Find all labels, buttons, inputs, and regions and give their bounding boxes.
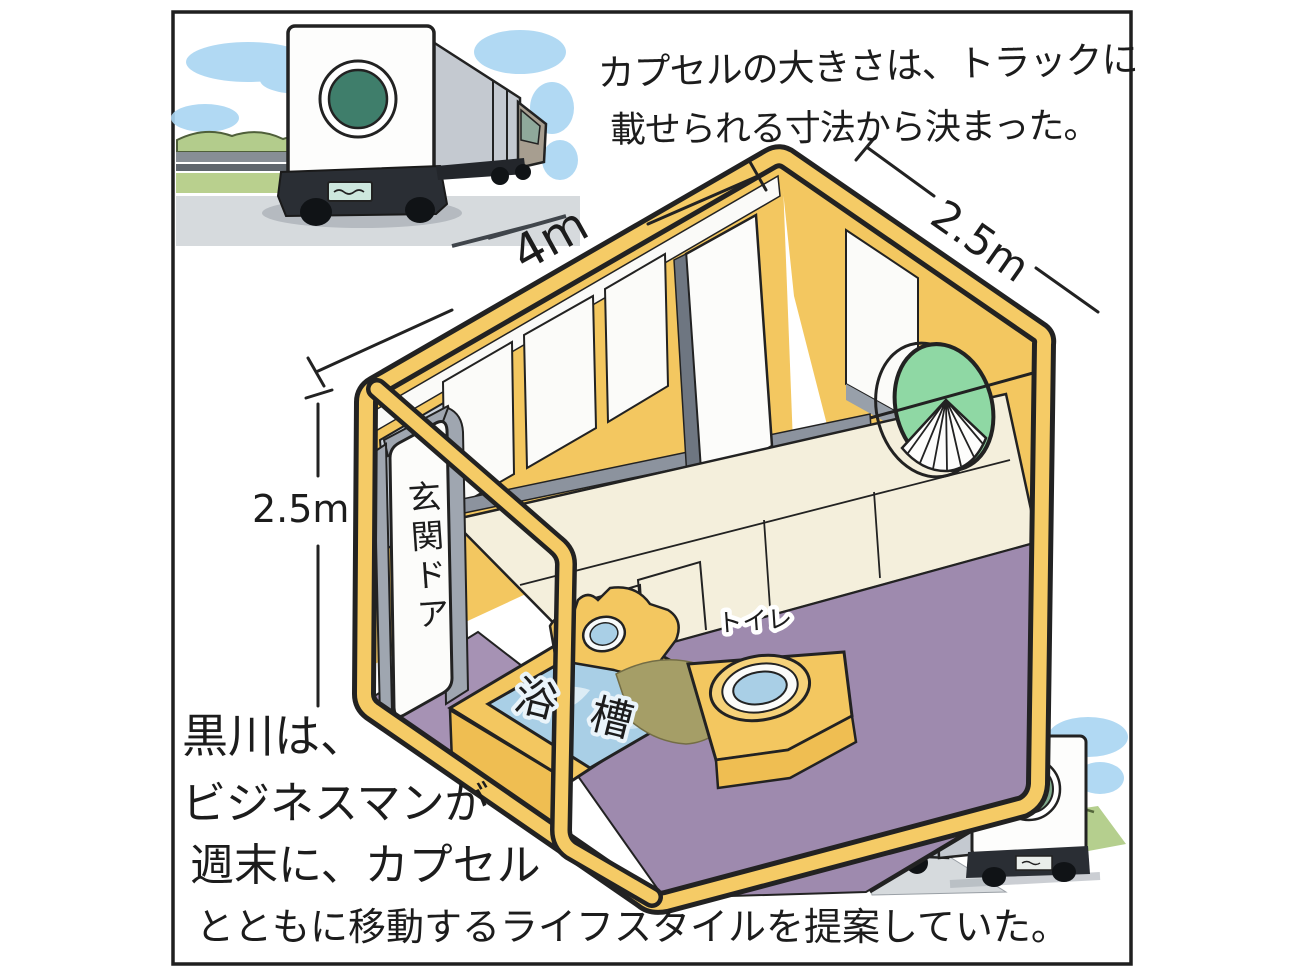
caption-bottom-line2: ビジネスマンが bbox=[182, 778, 489, 829]
dim-height-label: 2.5m bbox=[252, 487, 349, 531]
porthole-window-icon bbox=[329, 70, 387, 128]
caption-bottom-line1: 黒川は、 bbox=[182, 709, 366, 763]
toilet-label: トイレ bbox=[716, 604, 793, 638]
wheel bbox=[515, 164, 531, 180]
caption-top-line2: 載せられる寸法から決まった。 bbox=[610, 106, 1099, 151]
truck-scene-top-left bbox=[171, 26, 580, 246]
license-plate bbox=[1016, 856, 1052, 870]
caption-bottom-line3: 週末に、カプセル bbox=[190, 840, 541, 891]
wheel bbox=[405, 197, 435, 223]
capsule-diagram: カプセルの大きさは、トラックに 載せられる寸法から決まった。 黒川は、 ビジネス… bbox=[0, 0, 1300, 975]
wheel bbox=[982, 867, 1006, 887]
illustration-page: カプセルの大きさは、トラックに 載せられる寸法から決まった。 黒川は、 ビジネス… bbox=[0, 0, 1300, 975]
wheel bbox=[300, 198, 332, 226]
caption-bottom-line4: とともに移動するライフスタイルを提案していた。 bbox=[196, 905, 1069, 949]
wheel bbox=[491, 167, 509, 185]
wheel bbox=[1052, 862, 1076, 882]
